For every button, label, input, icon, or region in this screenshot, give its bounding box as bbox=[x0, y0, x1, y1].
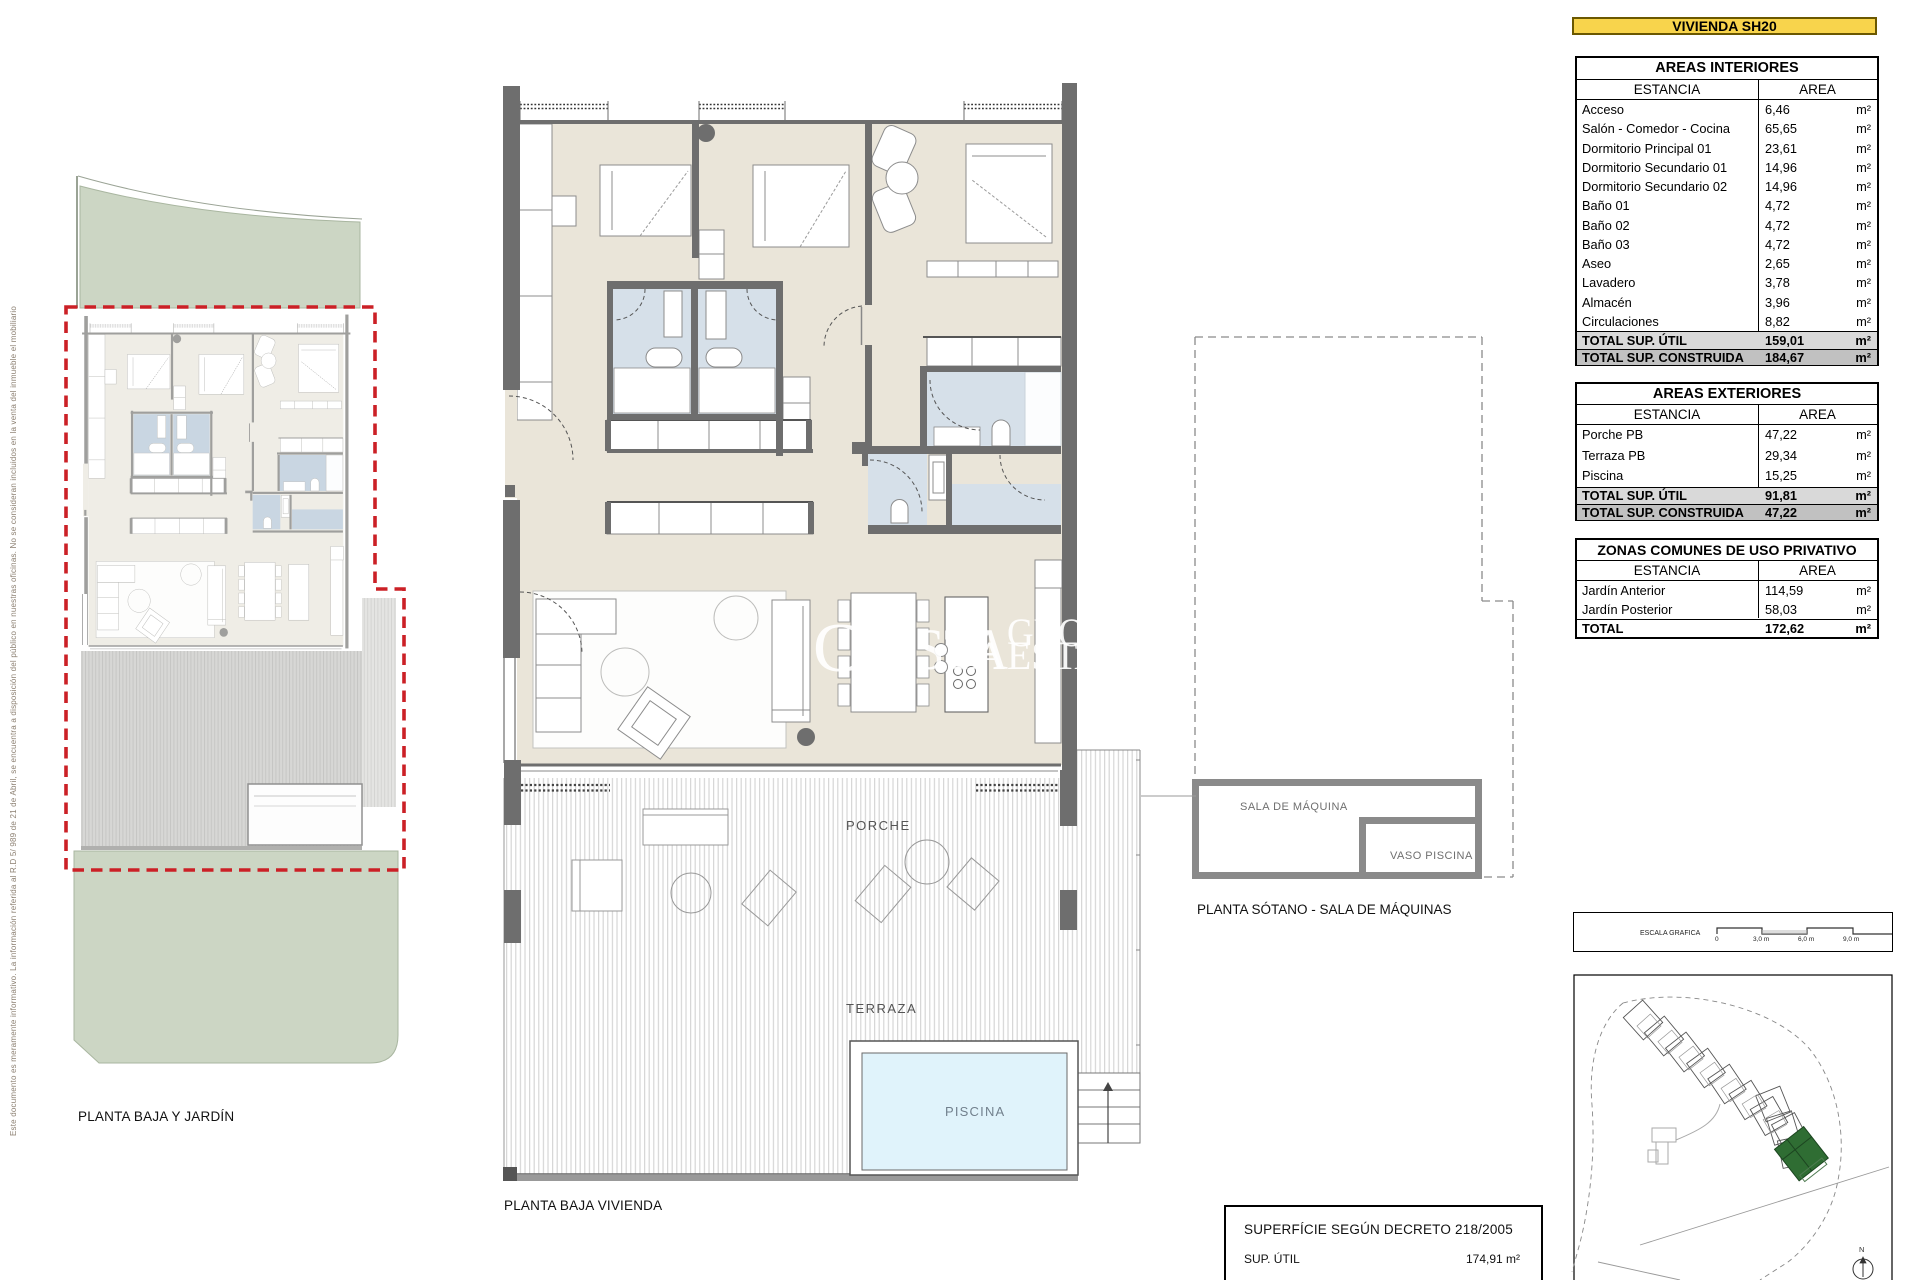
svg-text:C: C bbox=[813, 610, 860, 687]
svg-text:PORCHE: PORCHE bbox=[846, 818, 911, 833]
svg-text:SALA DE MÁQUINA: SALA DE MÁQUINA bbox=[1240, 800, 1348, 813]
svg-text:TERRAZA: TERRAZA bbox=[846, 1001, 917, 1016]
svg-text:ESTATE: ESTATE bbox=[1007, 633, 1147, 678]
svg-text:PISCINA: PISCINA bbox=[945, 1104, 1005, 1119]
svg-text:N: N bbox=[1859, 1245, 1865, 1254]
svg-text:A: A bbox=[976, 633, 1005, 678]
svg-text:VASO PISCINA: VASO PISCINA bbox=[1390, 850, 1473, 862]
